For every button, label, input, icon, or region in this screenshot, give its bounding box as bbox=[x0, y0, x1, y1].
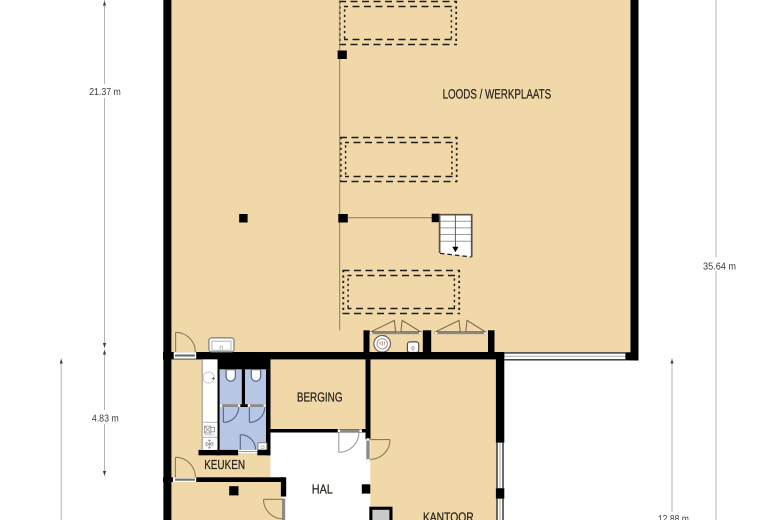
svg-text:KANTOOR: KANTOOR bbox=[423, 509, 474, 520]
svg-text:KEUKEN: KEUKEN bbox=[204, 457, 245, 472]
svg-text:21.37 m: 21.37 m bbox=[89, 87, 121, 98]
svg-text:4.83 m: 4.83 m bbox=[92, 414, 119, 425]
svg-text:12.88 m: 12.88 m bbox=[658, 514, 689, 520]
svg-text:BERGING: BERGING bbox=[297, 389, 343, 404]
svg-text:LOODS / WERKPLAATS: LOODS / WERKPLAATS bbox=[443, 87, 552, 102]
svg-text:35.64 m: 35.64 m bbox=[703, 261, 736, 272]
svg-text:HAL: HAL bbox=[312, 482, 333, 497]
